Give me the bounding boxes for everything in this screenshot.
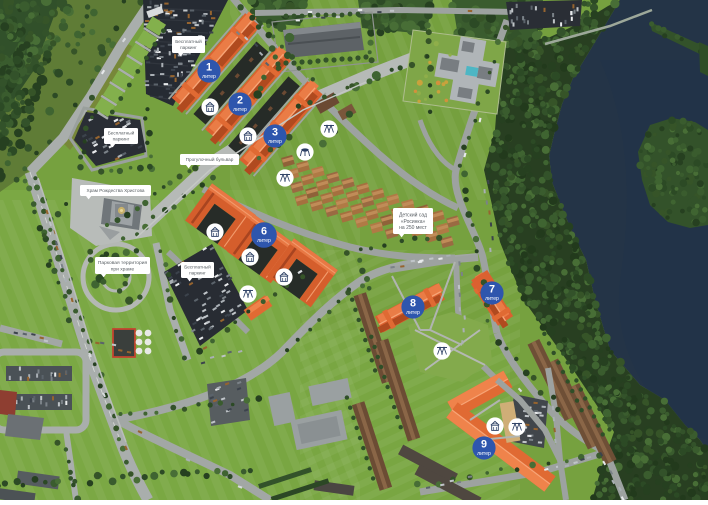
svg-text:литер: литер: [257, 238, 271, 244]
svg-text:паркинг: паркинг: [113, 137, 130, 142]
svg-text:литер: литер: [406, 310, 420, 316]
svg-text:паркинг: паркинг: [189, 271, 206, 276]
svg-text:9: 9: [481, 439, 487, 451]
svg-text:паркинг: паркинг: [180, 45, 197, 50]
svg-text:7: 7: [489, 284, 495, 296]
svg-text:при храме: при храме: [111, 267, 135, 272]
svg-text:Прогулочный бульвар: Прогулочный бульвар: [186, 156, 234, 162]
svg-text:на 250 мест: на 250 мест: [399, 225, 427, 231]
svg-text:6: 6: [261, 226, 267, 238]
svg-text:3: 3: [272, 127, 278, 139]
svg-text:Парковая территория: Парковая территория: [98, 260, 148, 266]
svg-text:«Росинка»: «Росинка»: [401, 219, 426, 225]
svg-text:2: 2: [237, 95, 243, 107]
svg-text:Бесплатный: Бесплатный: [108, 130, 135, 136]
svg-text:литер: литер: [268, 139, 282, 145]
svg-text:8: 8: [410, 298, 416, 310]
svg-text:литер: литер: [233, 107, 247, 113]
svg-text:Бесплатный: Бесплатный: [184, 264, 211, 270]
svg-text:литер: литер: [477, 451, 491, 457]
svg-text:1: 1: [206, 62, 212, 74]
svg-text:Бесплатный: Бесплатный: [175, 38, 202, 44]
svg-text:Детский сад: Детский сад: [399, 211, 427, 218]
svg-text:литер: литер: [202, 74, 216, 80]
svg-text:литер: литер: [485, 296, 499, 302]
svg-text:Храм Рождества Христова: Храм Рождества Христова: [86, 188, 144, 193]
